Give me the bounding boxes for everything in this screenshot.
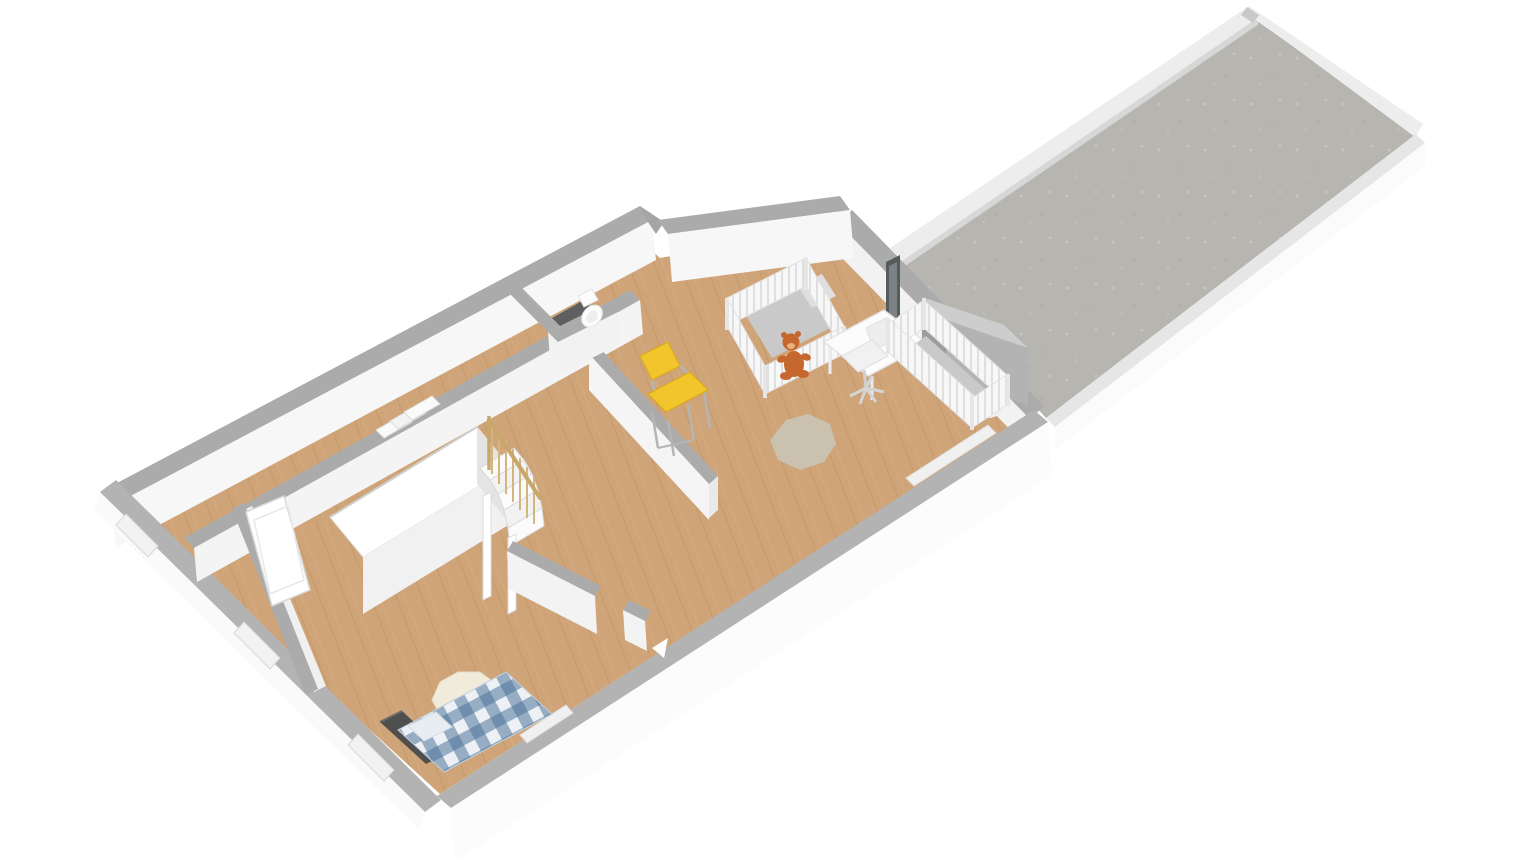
teddy-body <box>784 351 804 377</box>
teddy-muzzle <box>787 343 795 349</box>
floorplan-3d-render <box>0 0 1536 864</box>
stair-doorframe-left <box>483 492 491 600</box>
floorplan-canvas <box>0 0 1536 864</box>
